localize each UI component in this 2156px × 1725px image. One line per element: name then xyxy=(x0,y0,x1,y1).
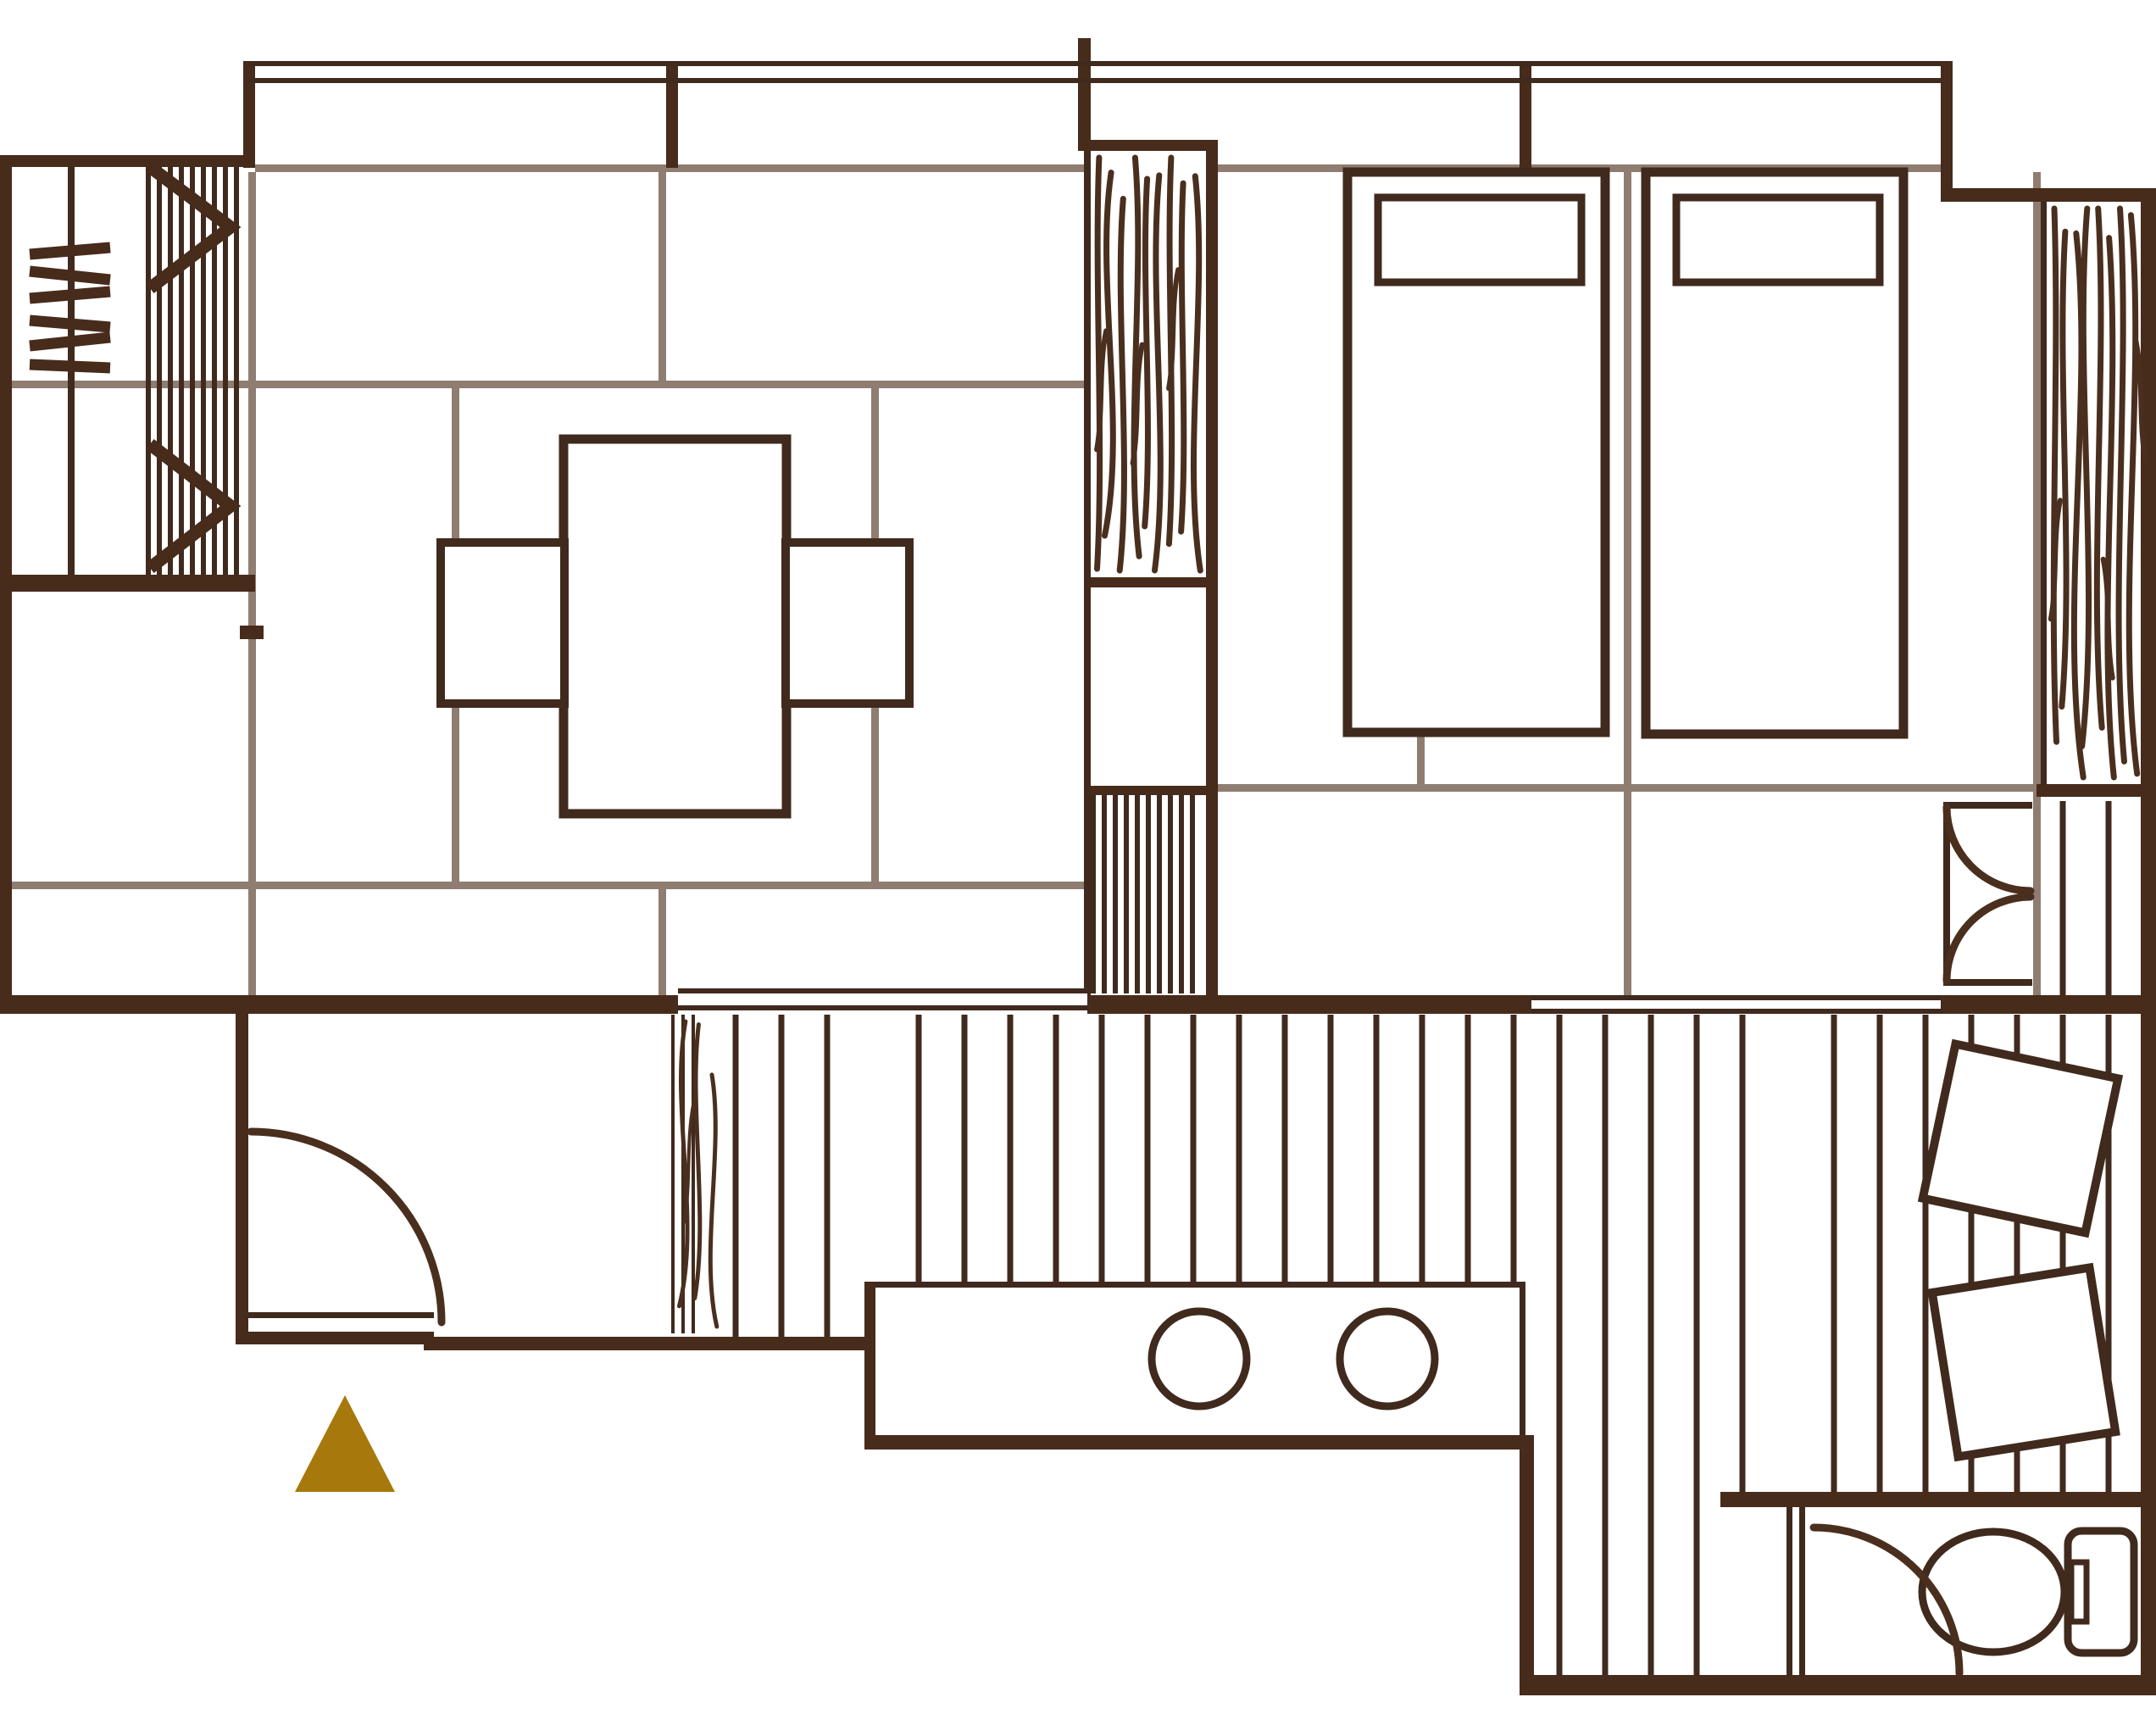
east-wood-grain-strand xyxy=(2053,209,2056,742)
tatami-vline-bottom xyxy=(658,889,666,995)
wall-column-right-bar xyxy=(1206,140,1218,995)
tatami-hline-lower xyxy=(12,882,1084,889)
twin-bed-2-pillow xyxy=(1676,198,1880,282)
window-band-top-line xyxy=(248,61,1941,66)
wall-closet-bottom xyxy=(0,575,255,592)
counter-right-line xyxy=(1520,1284,1525,1435)
closetdoor-frame-bottom xyxy=(1943,979,2032,986)
wall-window-post-1 xyxy=(243,61,255,168)
vanity-sink-1 xyxy=(1152,1311,1247,1406)
threshold-tatami-engawa-edge-0 xyxy=(678,988,1087,993)
wall-step-right xyxy=(1520,1450,1534,1695)
wall-closet-top xyxy=(0,155,255,167)
floor-plan-drawing xyxy=(0,0,2156,1725)
veranda-chair-2 xyxy=(1932,1268,2115,1457)
closet-shelf-tick-5 xyxy=(30,364,110,368)
toilet-flush-panel xyxy=(2071,1562,2087,1622)
wall-genkan-left xyxy=(236,1011,248,1344)
floor-cushion-right xyxy=(786,543,909,704)
floor-cushion-left xyxy=(441,543,564,704)
wall-window-post-3 xyxy=(1520,61,1531,168)
wall-counter-left xyxy=(864,1282,875,1450)
threshold-genkan-edge-0 xyxy=(248,1312,434,1318)
partition-wood-grain-strand xyxy=(1097,158,1100,569)
wall-column-bar-lower xyxy=(1084,786,1218,795)
wall-column-top-bar xyxy=(1078,140,1218,151)
wall-counter-bottom xyxy=(864,1435,1534,1450)
threshold-bedroom-engawa-edge-1 xyxy=(1531,1009,1941,1014)
wall-topright-post xyxy=(1941,61,1953,202)
column-left-line xyxy=(1084,151,1091,995)
twin-bed-1-pillow xyxy=(1378,198,1581,282)
closet-shelf-tick-0 xyxy=(30,248,110,254)
partition-wood-grain-strand xyxy=(1145,179,1148,526)
rightpanel-left-line xyxy=(2041,202,2047,784)
bedroom-vline-center xyxy=(1624,172,1631,995)
wall-genkan-bottom xyxy=(236,1332,434,1344)
toilet-bowl xyxy=(1922,1532,2064,1652)
partition-wood-grain-strand xyxy=(1181,183,1184,531)
counter-top-line xyxy=(875,1282,1525,1288)
tatami-vline-top xyxy=(658,172,666,381)
floor-plan-page xyxy=(0,0,2156,1725)
closet-shelf-tick-3 xyxy=(30,320,110,327)
closetdoor-frame-top xyxy=(1943,802,2032,809)
bedroom-hline xyxy=(1218,784,2037,792)
toilet-left-wall-a xyxy=(1786,1507,1792,1677)
window-band-bottom-line xyxy=(248,78,1941,83)
vanity-sink-2 xyxy=(1340,1311,1435,1406)
veranda-chair-1 xyxy=(1923,1044,2118,1233)
closet-shelf-tick-2 xyxy=(30,292,110,298)
bedroom-vline-short xyxy=(1417,733,1425,784)
threshold-tatami-engawa-edge-1 xyxy=(678,1005,1087,1010)
toilet-left-wall-b xyxy=(1799,1507,1805,1677)
wall-toilet-top xyxy=(1720,1492,2156,1507)
wall-column-stub xyxy=(1078,38,1091,151)
wall-topright-bar xyxy=(1941,188,2156,202)
wall-post-tick xyxy=(240,626,264,639)
wall-column-bar-upper xyxy=(1084,577,1218,587)
wall-bottom-right xyxy=(1525,1675,2156,1695)
wall-window-post-2 xyxy=(666,61,678,168)
wall-rightpanel-bottom-bar xyxy=(2037,784,2156,797)
bedroom-right-edge xyxy=(2033,172,2041,995)
low-table xyxy=(564,439,786,814)
threshold-bedroom-engawa-edge-0 xyxy=(1531,995,1941,1000)
wall-engawa-left-bottom xyxy=(424,1337,875,1350)
